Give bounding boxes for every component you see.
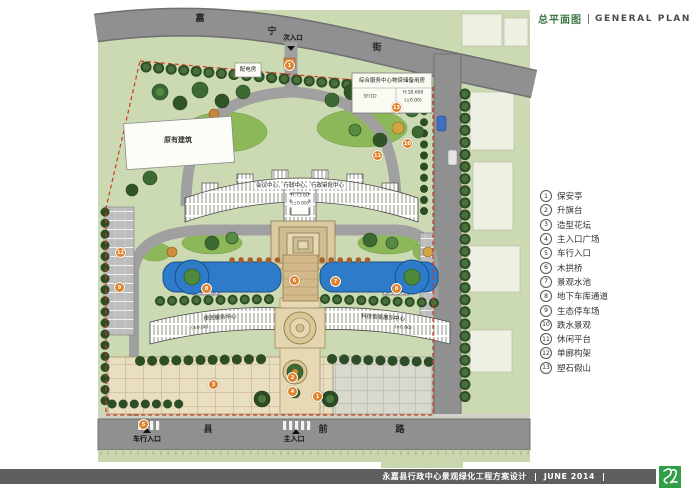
bottom-road <box>98 414 530 468</box>
storage-building <box>352 73 432 113</box>
legend-item-label: 塑石假山 <box>557 362 591 374</box>
legend-item-label: 生态停车场 <box>557 305 600 317</box>
footer-date: JUNE 2014 <box>544 472 595 481</box>
legend-number-badge: 12 <box>540 347 552 359</box>
legend-number-badge: 7 <box>540 276 552 288</box>
guard-booth <box>284 58 295 67</box>
legend-number-badge: 10 <box>540 319 552 331</box>
legend-number-badge: 3 <box>540 219 552 231</box>
legend-number-badge: 11 <box>540 333 552 345</box>
legend-item-label: 木拱桥 <box>557 262 583 274</box>
legend-list: 1保安亭2升旗台3造型花坛4主入口广场5车行入口6木拱桥7景观水池8地下车库通道… <box>540 189 608 375</box>
sheet-title-en: GENERAL PLAN <box>595 14 691 24</box>
legend-item: 9生态停车场 <box>540 303 608 317</box>
legend-item-label: 主入口广场 <box>557 233 600 245</box>
legend-item: 7景观水池 <box>540 275 608 289</box>
wooden-bridge <box>283 255 318 301</box>
footer-project-title: 永嘉县行政中心景观绿化工程方案设计 <box>382 471 527 482</box>
legend-item: 10跌水景观 <box>540 318 608 332</box>
sheet-title: 总平面图 GENERAL PLAN <box>538 11 691 26</box>
legend-item: 13塑石假山 <box>540 361 608 375</box>
legend-item: 6木拱桥 <box>540 260 608 274</box>
legend-item-label: 休闲平台 <box>557 333 591 345</box>
power-room-building <box>235 63 261 77</box>
legend-item-label: 造型花坛 <box>557 219 591 231</box>
legend-item: 11休闲平台 <box>540 332 608 346</box>
company-logo <box>659 466 681 488</box>
existing-building <box>124 116 235 169</box>
logo-glyph-icon <box>659 466 681 488</box>
legend-item: 12单廊构架 <box>540 346 608 360</box>
legend-number-badge: 13 <box>540 362 552 374</box>
footer-bar: 永嘉县行政中心景观绿化工程方案设计 JUNE 2014 <box>0 469 656 484</box>
legend-item: 4主入口广场 <box>540 232 608 246</box>
legend-number-badge: 6 <box>540 262 552 274</box>
plan-sheet-page: 嘉 宁 街 次入口 县 前 路 车行入口 主入口 原有建筑 配电房 综合服务中心… <box>0 0 700 495</box>
sheet-title-cn: 总平面图 <box>538 11 582 26</box>
legend-item-label: 地下车库通道 <box>557 290 608 302</box>
legend-number-badge: 4 <box>540 233 552 245</box>
legend-item-label: 跌水景观 <box>557 319 591 331</box>
legend-number-badge: 2 <box>540 204 552 216</box>
legend-item-label: 保安亭 <box>557 190 583 202</box>
title-divider <box>588 14 589 24</box>
legend-item-label: 景观水池 <box>557 276 591 288</box>
legend-item-label: 单廊构架 <box>557 347 591 359</box>
legend-item: 5车行入口 <box>540 246 608 260</box>
legend-item-label: 升旗台 <box>557 204 583 216</box>
right-road <box>434 54 461 452</box>
legend-number-badge: 5 <box>540 247 552 259</box>
footer-divider <box>535 473 536 481</box>
legend-number-badge: 8 <box>540 290 552 302</box>
legend-item-label: 车行入口 <box>557 247 591 259</box>
legend-number-badge: 9 <box>540 305 552 317</box>
legend-number-badge: 1 <box>540 190 552 202</box>
legend-item: 1保安亭 <box>540 189 608 203</box>
legend-item: 3造型花坛 <box>540 218 608 232</box>
legend-item: 2升旗台 <box>540 203 608 217</box>
footer-text: 永嘉县行政中心景观绿化工程方案设计 JUNE 2014 <box>382 469 612 484</box>
footer-divider <box>603 473 604 481</box>
legend-item: 8地下车库通道 <box>540 289 608 303</box>
